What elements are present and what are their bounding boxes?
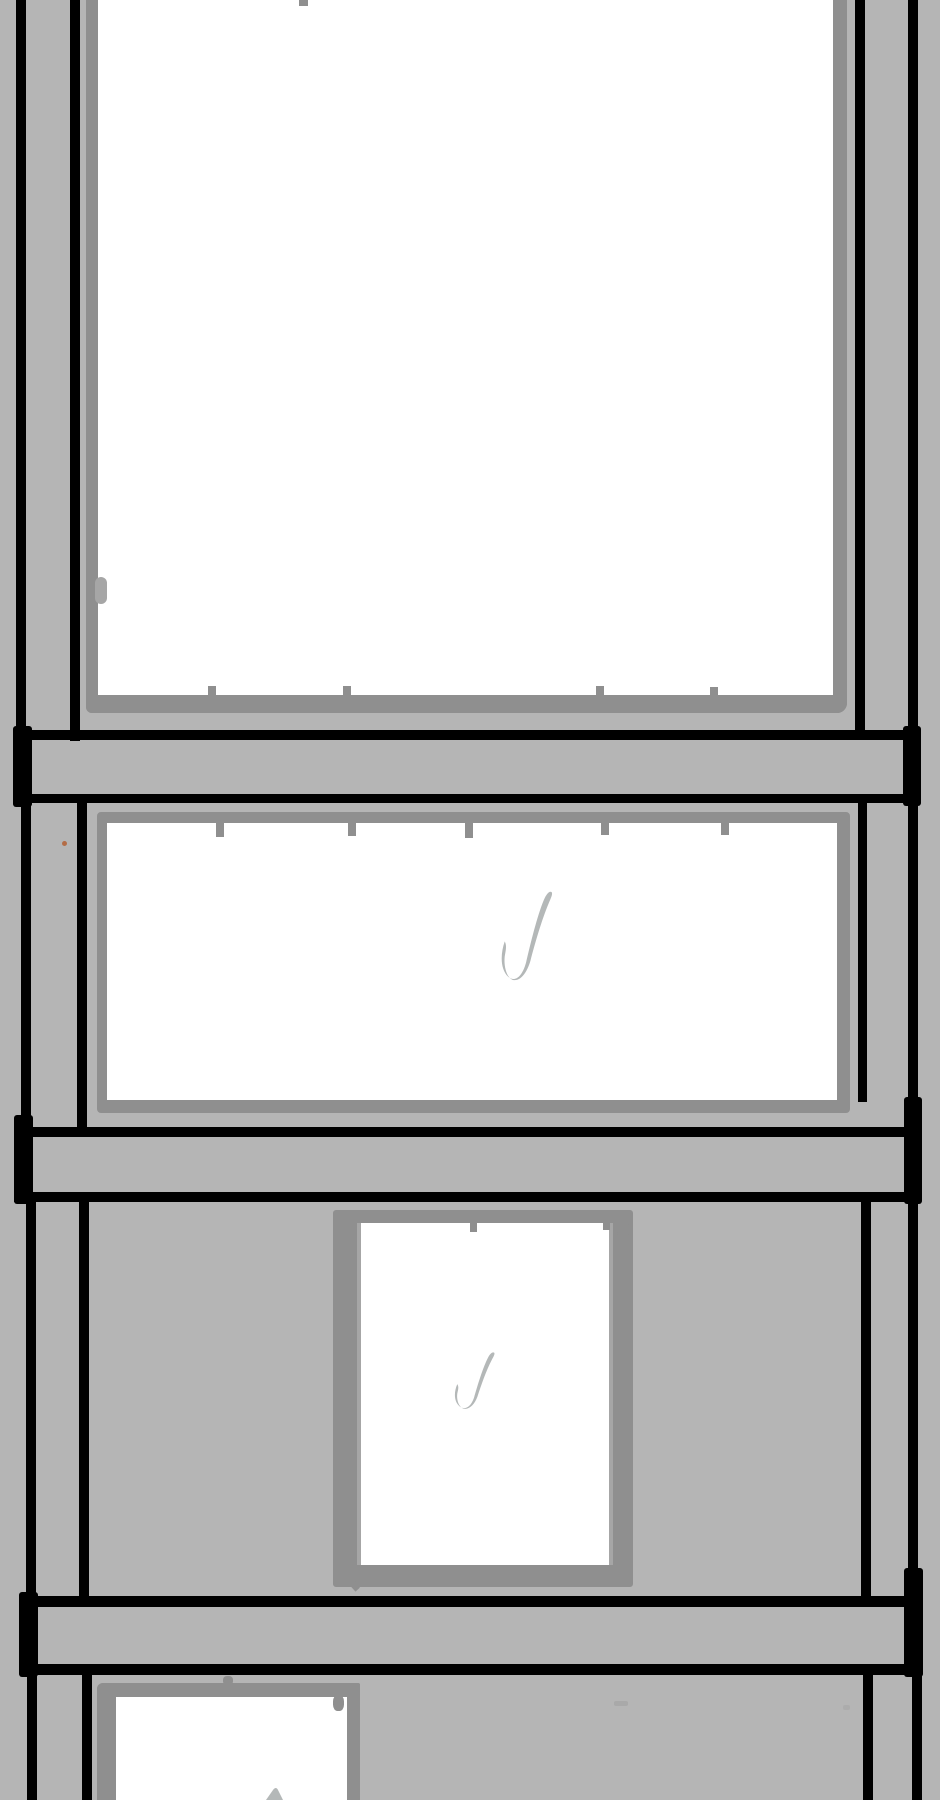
brush-drip	[470, 1221, 477, 1232]
brush-tick	[710, 687, 718, 697]
brush-drip	[465, 822, 473, 838]
pier-line-right-outer-seg1	[908, 0, 918, 729]
window-pane-2[interactable]	[97, 812, 850, 1113]
floor-bar-1-left-junction	[13, 726, 32, 807]
brush-tick	[596, 686, 604, 697]
pier-line-left-outer-seg4	[27, 1675, 37, 1800]
pier-line-left-outer-seg2	[21, 803, 31, 1118]
brush-drip	[721, 822, 729, 835]
pier-line-left-inner-seg4	[82, 1675, 92, 1800]
smudge-speck	[843, 1705, 850, 1710]
brush-tick	[299, 0, 308, 6]
floor-bar-2-right-junction	[904, 1097, 922, 1204]
pier-line-left-inner-seg2	[77, 795, 87, 1136]
brush-tick	[208, 686, 216, 697]
pier-line-left-inner-seg3	[79, 1202, 89, 1599]
sketch-canvas[interactable]	[0, 0, 940, 1800]
brush-drip	[601, 822, 609, 835]
check-icon	[452, 1350, 496, 1410]
stray-dot	[62, 841, 67, 846]
floor-bar-2-left-junction	[14, 1115, 33, 1204]
floor-bar-1-bottom-line	[14, 794, 920, 803]
floor-bar-1-band	[0, 739, 940, 795]
floor-bar-3-left-junction	[19, 1592, 38, 1677]
brush-drip	[348, 822, 356, 836]
brush-drip	[603, 1221, 610, 1230]
floor-bar-2-band	[0, 1137, 940, 1193]
frame-nub	[95, 577, 107, 604]
floor-bar-3-top-line	[22, 1596, 917, 1607]
pier-line-left-inner-seg1	[70, 0, 80, 741]
pier-line-right-outer-seg4	[912, 1675, 922, 1800]
pier-line-left-outer-seg3	[26, 1202, 36, 1599]
brush-tick	[343, 686, 351, 697]
floor-bar-3-band	[0, 1607, 940, 1665]
pier-line-left-outer-seg1	[16, 0, 26, 730]
brush-bump	[223, 1676, 233, 1685]
pier-line-right-outer-seg2	[908, 803, 918, 1100]
pier-line-right-outer-seg3	[908, 1204, 918, 1572]
smudge-speck	[614, 1701, 628, 1706]
floor-bar-2-bottom-line	[14, 1192, 921, 1202]
brush-drip	[216, 822, 224, 837]
floor-bar-3-bottom-line	[20, 1664, 921, 1675]
pier-line-right-inner-seg1	[855, 0, 865, 733]
floor-bar-1-top-line	[15, 730, 919, 740]
floor-bar-2-top-line	[16, 1127, 917, 1137]
window-pane-1[interactable]	[86, 0, 847, 713]
window-pane-4[interactable]	[97, 1683, 360, 1800]
check-icon-clipped	[257, 1786, 287, 1800]
pier-line-right-inner-seg4	[863, 1675, 873, 1800]
floor-bar-1-right-junction	[903, 726, 921, 806]
floor-bar-3-right-junction	[904, 1568, 923, 1677]
pier-line-right-inner-seg3	[861, 1202, 871, 1599]
pier-line-right-inner-seg2	[858, 803, 867, 1102]
brush-drip	[333, 1695, 344, 1711]
brush-drip	[617, 1221, 629, 1238]
check-icon	[498, 888, 554, 982]
